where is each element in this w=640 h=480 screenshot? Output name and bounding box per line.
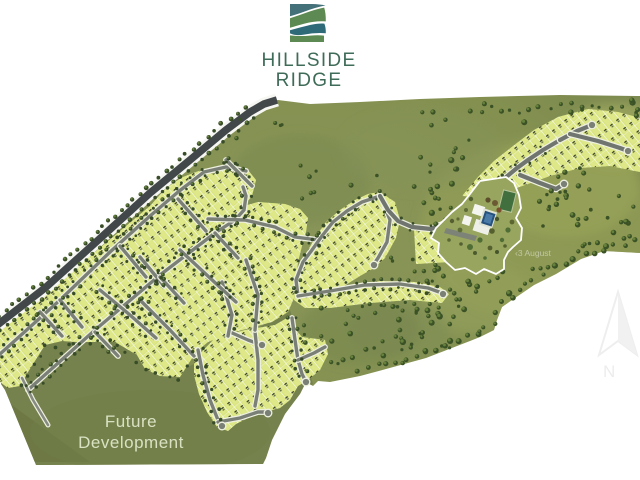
- svg-text:Future: Future: [105, 412, 157, 431]
- svg-text:N: N: [603, 362, 615, 381]
- svg-text:Development: Development: [78, 433, 184, 452]
- svg-text:‹3 August: ‹3 August: [515, 248, 552, 258]
